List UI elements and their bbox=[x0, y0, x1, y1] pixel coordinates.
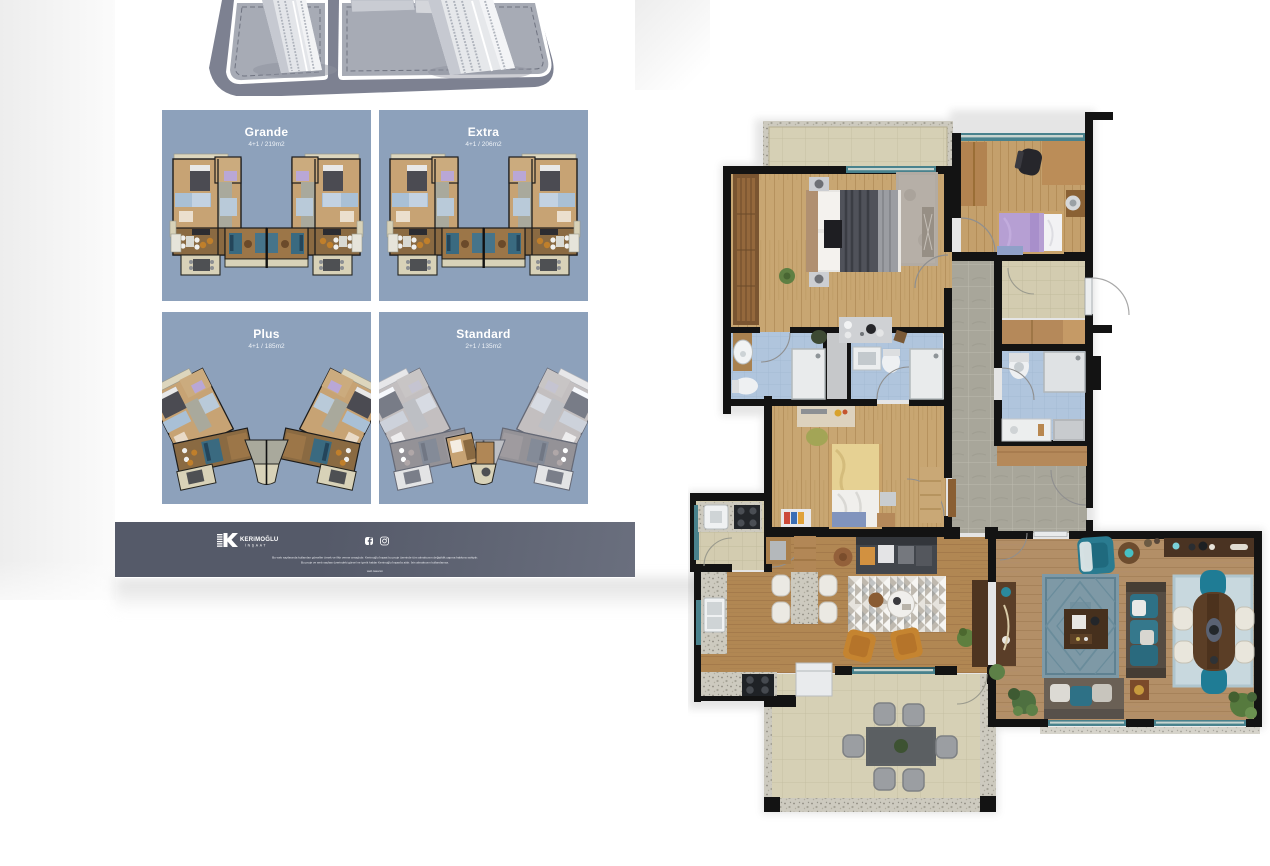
svg-text:KERiMOĞLU: KERiMOĞLU bbox=[240, 535, 278, 543]
svg-text:Bu web sayfasında kullanılan g: Bu web sayfasında kullanılan görseller ö… bbox=[272, 555, 478, 560]
svg-text:web tasarım: web tasarım bbox=[367, 569, 384, 573]
svg-text:İNŞAAT: İNŞAAT bbox=[245, 543, 267, 548]
svg-text:Bu proje ve web sayfası üzerin: Bu proje ve web sayfası üzerindeki görse… bbox=[301, 560, 449, 565]
